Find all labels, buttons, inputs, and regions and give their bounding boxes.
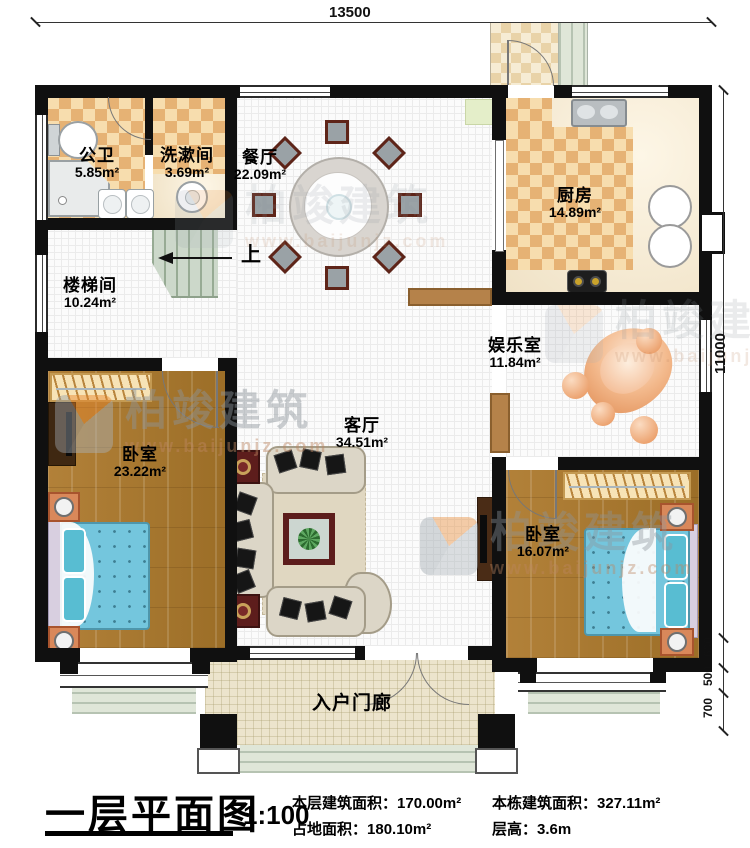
bedroom1-wardrobe[interactable]	[50, 373, 152, 402]
porch-column-base-right	[475, 748, 518, 774]
compass-ornament	[235, 603, 251, 619]
kitchen-sink	[571, 99, 627, 127]
wall-kitchen-left-a	[492, 97, 506, 140]
dining-chair[interactable]	[325, 266, 349, 290]
total-area-value: 327.11m²	[597, 795, 660, 812]
bay1-steps	[72, 688, 196, 714]
room-label-woshi1: 卧室23.22m²	[80, 445, 200, 480]
bedroom2-door-leaf	[555, 470, 557, 518]
floor-area-label: 本层建筑面积：	[292, 795, 397, 812]
cushion-ball[interactable]	[636, 328, 662, 354]
dim-seg-600: 600	[701, 637, 715, 657]
washroom-round-sink	[176, 181, 208, 213]
land-area-line: 占地面积：180.10m²	[292, 818, 431, 839]
dim-line-top	[35, 22, 712, 23]
floor-area-value: 170.00m²	[397, 795, 461, 812]
shower-drain	[58, 196, 67, 205]
porch-column-base-left	[197, 748, 240, 774]
flue-box	[699, 212, 725, 254]
wall-bedroom1-bottom-r	[190, 648, 237, 662]
kitchen-floor-a	[506, 97, 552, 127]
burner-right	[590, 276, 601, 287]
bay2-post-right	[650, 672, 666, 683]
storey-height-label: 层高：	[492, 821, 537, 838]
kitchen-round-stool-2	[648, 224, 692, 268]
wall-bedroom1-right	[225, 358, 237, 662]
land-area-value: 180.10m²	[367, 821, 431, 838]
cushion-ball[interactable]	[562, 372, 589, 399]
window-kitchen-top	[572, 85, 668, 98]
room-label-yuleshi: 娱乐室11.84m²	[455, 336, 575, 371]
vanity-sink-1	[98, 189, 126, 219]
gas-stove	[567, 270, 607, 293]
total-area-line: 本栋建筑面积：327.11m²	[492, 792, 660, 813]
room-label-chufang: 厨房14.89m²	[515, 186, 635, 221]
dim-right-value: 11000	[712, 333, 729, 374]
dining-chair[interactable]	[325, 120, 349, 144]
kitchen-door-mat	[465, 99, 493, 125]
title-underline	[45, 831, 233, 836]
bedroom1-pillow-1	[62, 528, 86, 574]
window-living-south	[250, 646, 355, 660]
kitchen-back-door-opening	[508, 85, 554, 98]
dim-top-value: 13500	[325, 4, 375, 21]
bay2-post-left	[520, 672, 536, 683]
bedroom2-wardrobe[interactable]	[563, 472, 691, 500]
console-table-h	[408, 288, 492, 306]
porch-column-left	[200, 714, 237, 748]
storey-height-value: 3.6m	[537, 821, 571, 838]
plant-icon	[298, 528, 320, 550]
coffee-table	[283, 513, 335, 565]
dining-table-center	[326, 194, 352, 220]
bedroom2-door-opening	[506, 457, 558, 470]
floor-plan-canvas: 上	[0, 0, 750, 848]
bay1-post-left	[60, 662, 78, 674]
bay1-post-right	[192, 662, 210, 674]
console-table-v	[490, 393, 510, 453]
wall-bedroom2-bottom-l	[492, 658, 537, 672]
vanity-sink-2	[126, 189, 154, 219]
wall-living-bedroom2	[492, 470, 506, 672]
dim-seg-700: 700	[701, 698, 715, 718]
bedroom1-pillow-2	[62, 576, 86, 622]
basin	[185, 190, 200, 205]
room-label-canting: 餐厅22.09m²	[200, 148, 320, 183]
bedroom2-nightstand-1	[660, 503, 694, 531]
wall-bedroom1-bottom-l	[35, 648, 80, 662]
sink-basin-left	[577, 105, 595, 119]
stair-direction-line	[172, 257, 232, 259]
storey-height-line: 层高：3.6m	[492, 818, 571, 839]
bay2-window-sill	[518, 672, 666, 692]
bay2-steps	[528, 692, 660, 714]
bedroom2-nightstand-2	[660, 628, 694, 656]
sink-basin-right	[600, 105, 618, 119]
room-label-keting: 客厅34.51m²	[302, 416, 422, 451]
bedroom1-nightstand-1	[48, 492, 80, 522]
cushion-ball[interactable]	[591, 402, 615, 426]
window-dining-top	[240, 85, 330, 98]
bedroom2-pillow-1	[664, 534, 688, 580]
bedroom1-door-opening	[162, 358, 218, 371]
tv-screen	[66, 412, 72, 456]
sofa-pillow	[304, 600, 326, 622]
land-area-label: 占地面积：	[292, 821, 367, 838]
sofa-pillow	[235, 548, 257, 570]
dining-chair[interactable]	[252, 193, 276, 217]
stair-arrow-icon	[158, 252, 173, 264]
bay1-window-sill	[60, 662, 208, 688]
dim-seg-500: 500	[701, 666, 715, 686]
kitchen-sliding-door[interactable]	[495, 140, 504, 252]
kitchen-back-door-leaf	[507, 40, 509, 85]
bedroom2-pillow-2	[664, 582, 688, 628]
sofa-pillow	[299, 448, 322, 471]
porch-column-right	[478, 714, 515, 748]
cushion-ball[interactable]	[630, 416, 658, 444]
room-label-porch: 入户门廊	[292, 693, 412, 714]
bedroom1-tv-console	[48, 402, 76, 466]
stair-up-label: 上	[236, 244, 266, 266]
wall-kitchen-bottom	[492, 292, 712, 305]
back-porch-steps	[558, 22, 588, 87]
basin	[103, 195, 122, 214]
dining-chair[interactable]	[398, 193, 422, 217]
burner-left	[573, 276, 584, 287]
window-entertainment-right	[699, 320, 712, 392]
wall-sanitary-bottom	[35, 218, 237, 230]
compass-ornament	[235, 459, 251, 475]
total-area-label: 本栋建筑面积：	[492, 795, 597, 812]
kitchen-round-stool-1	[648, 185, 692, 229]
porch-steps	[240, 745, 478, 773]
basin	[131, 195, 150, 214]
room-label-loutijian: 楼梯间10.24m²	[30, 276, 150, 311]
bedroom1-door-leaf	[216, 371, 218, 427]
sofa-pillow	[325, 454, 346, 475]
room-label-woshi2: 卧室16.07m²	[483, 525, 603, 560]
floor-area-line: 本层建筑面积：170.00m²	[292, 792, 461, 813]
